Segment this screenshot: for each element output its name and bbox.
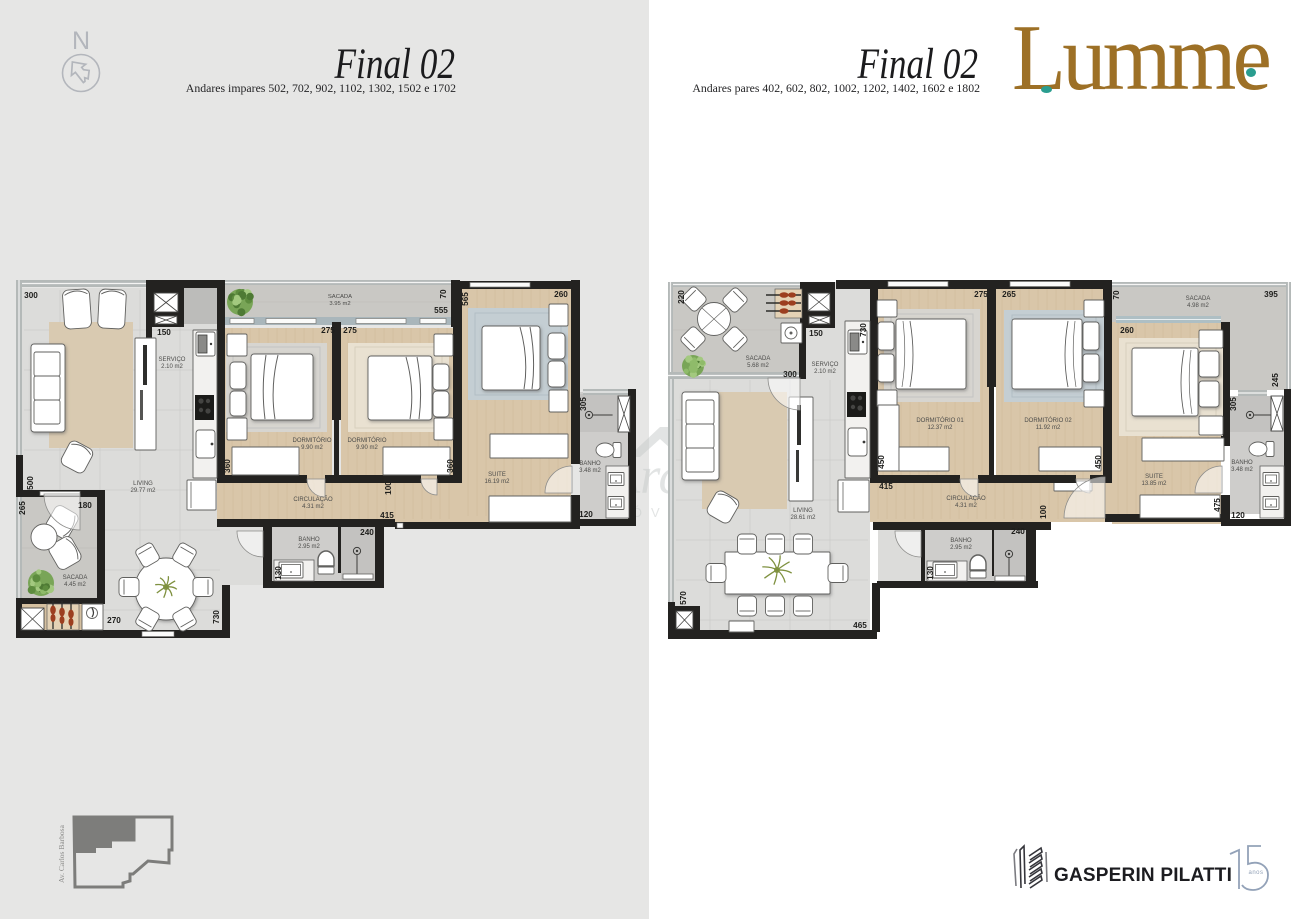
svg-text:DORMITÓRIO: DORMITÓRIO <box>348 437 387 444</box>
svg-text:SACADA: SACADA <box>746 356 771 362</box>
svg-text:DORMITÓRIO: DORMITÓRIO <box>293 437 332 444</box>
svg-text:265: 265 <box>18 501 27 515</box>
svg-text:SACADA: SACADA <box>1186 296 1211 302</box>
svg-text:4.45 m2: 4.45 m2 <box>64 582 86 588</box>
svg-text:500: 500 <box>26 476 35 490</box>
svg-text:4.31 m2: 4.31 m2 <box>302 504 324 510</box>
svg-text:CIRCULAÇÃO: CIRCULAÇÃO <box>293 496 333 503</box>
svg-text:100: 100 <box>1039 505 1048 519</box>
svg-text:730: 730 <box>859 323 868 337</box>
svg-text:2.10 m2: 2.10 m2 <box>161 364 183 370</box>
svg-text:270: 270 <box>107 616 121 625</box>
svg-text:12.37 m2: 12.37 m2 <box>927 425 953 431</box>
svg-text:anos: anos <box>1248 870 1263 876</box>
svg-text:SACADA: SACADA <box>63 575 88 581</box>
svg-text:13.85 m2: 13.85 m2 <box>1141 481 1167 487</box>
svg-text:305: 305 <box>1229 397 1238 411</box>
svg-text:360: 360 <box>446 459 455 473</box>
svg-text:2.10 m2: 2.10 m2 <box>814 369 836 375</box>
svg-text:LIVING: LIVING <box>793 508 813 514</box>
svg-text:Av. Carlos Barbosa: Av. Carlos Barbosa <box>57 824 66 883</box>
svg-text:GASPERIN PILATTI: GASPERIN PILATTI <box>1054 865 1232 886</box>
svg-text:SERVIÇO: SERVIÇO <box>812 362 839 368</box>
svg-text:275: 275 <box>974 290 988 299</box>
svg-text:11.92 m2: 11.92 m2 <box>1036 425 1061 431</box>
svg-text:450: 450 <box>1094 455 1103 469</box>
svg-text:3.48 m2: 3.48 m2 <box>579 468 601 474</box>
svg-text:245: 245 <box>1271 373 1280 387</box>
svg-text:415: 415 <box>879 482 893 491</box>
svg-text:120: 120 <box>1231 511 1245 520</box>
svg-text:9.90 m2: 9.90 m2 <box>301 445 323 451</box>
svg-text:360: 360 <box>223 459 232 473</box>
svg-text:570: 570 <box>679 591 688 605</box>
svg-text:130: 130 <box>926 566 935 580</box>
svg-text:BANHO: BANHO <box>950 538 972 544</box>
svg-text:70: 70 <box>1112 290 1121 300</box>
svg-text:180: 180 <box>78 501 92 510</box>
svg-text:305: 305 <box>579 397 588 411</box>
svg-text:DORMITÓRIO 02: DORMITÓRIO 02 <box>1024 417 1072 424</box>
svg-text:BANHO: BANHO <box>298 537 320 543</box>
svg-text:BANHO: BANHO <box>1231 460 1253 466</box>
svg-text:265: 265 <box>1002 290 1016 299</box>
svg-text:28.61 m2: 28.61 m2 <box>790 515 816 521</box>
svg-text:3.48 m2: 3.48 m2 <box>1231 467 1253 473</box>
svg-text:CIRCULAÇÃO: CIRCULAÇÃO <box>946 495 986 502</box>
svg-text:LIVING: LIVING <box>133 481 153 487</box>
svg-text:260: 260 <box>1120 326 1134 335</box>
svg-text:565: 565 <box>461 292 470 306</box>
svg-text:150: 150 <box>809 329 823 338</box>
svg-text:4.31 m2: 4.31 m2 <box>955 503 977 509</box>
svg-text:240: 240 <box>360 528 374 537</box>
svg-text:SUITE: SUITE <box>488 472 506 478</box>
svg-text:3.95 m2: 3.95 m2 <box>329 301 350 307</box>
svg-text:300: 300 <box>24 291 38 300</box>
svg-text:5.68 m2: 5.68 m2 <box>747 363 769 369</box>
svg-text:415: 415 <box>380 511 394 520</box>
svg-text:730: 730 <box>212 610 221 624</box>
svg-text:4.98 m2: 4.98 m2 <box>1187 303 1209 309</box>
svg-text:275: 275 <box>321 326 335 335</box>
svg-text:2.95 m2: 2.95 m2 <box>298 544 320 550</box>
svg-text:N: N <box>72 27 90 55</box>
svg-text:DORMITÓRIO 01: DORMITÓRIO 01 <box>916 417 964 424</box>
svg-text:275: 275 <box>343 326 357 335</box>
svg-text:555: 555 <box>434 306 448 315</box>
svg-text:100: 100 <box>384 481 393 495</box>
svg-text:SERVIÇO: SERVIÇO <box>159 357 186 363</box>
svg-text:2.95 m2: 2.95 m2 <box>950 545 972 551</box>
svg-text:395: 395 <box>1264 290 1278 299</box>
svg-text:300: 300 <box>783 370 797 379</box>
svg-text:450: 450 <box>877 455 886 469</box>
svg-text:475: 475 <box>1213 498 1222 512</box>
svg-text:130: 130 <box>274 566 283 580</box>
svg-text:465: 465 <box>853 621 867 630</box>
svg-text:9.90 m2: 9.90 m2 <box>356 445 378 451</box>
svg-text:240: 240 <box>1011 527 1025 536</box>
svg-text:16.19 m2: 16.19 m2 <box>484 479 510 485</box>
svg-text:SACADA: SACADA <box>328 294 352 300</box>
svg-text:260: 260 <box>554 290 568 299</box>
svg-text:70: 70 <box>439 289 448 299</box>
svg-text:SUITE: SUITE <box>1145 474 1163 480</box>
svg-text:BANHO: BANHO <box>579 461 601 467</box>
svg-text:120: 120 <box>579 510 593 519</box>
svg-text:220: 220 <box>677 290 686 304</box>
svg-text:150: 150 <box>157 328 171 337</box>
svg-text:29.77 m2: 29.77 m2 <box>130 488 156 494</box>
